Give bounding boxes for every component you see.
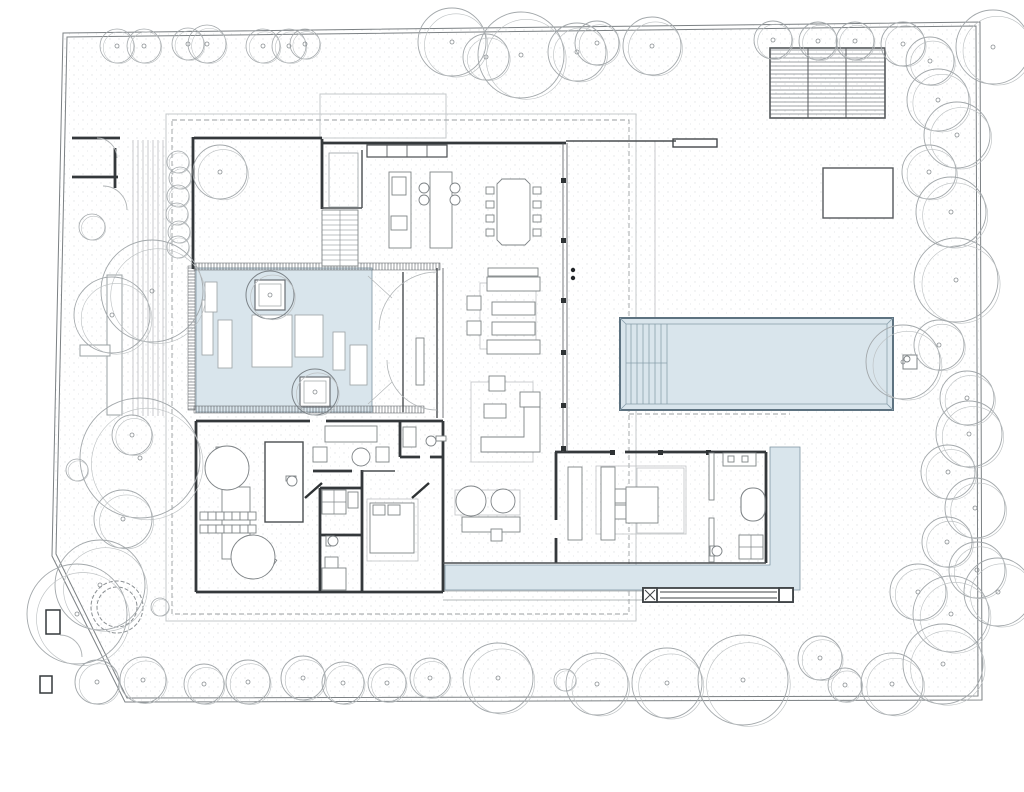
furniture-item bbox=[491, 529, 502, 541]
pergola-item bbox=[770, 48, 885, 118]
courtyard-pavers-item bbox=[333, 332, 345, 370]
furniture-item bbox=[489, 376, 505, 391]
furniture-item bbox=[486, 187, 494, 194]
deck-hatch-strips-item bbox=[194, 406, 424, 413]
furniture-item bbox=[568, 467, 582, 540]
furniture-item bbox=[436, 436, 446, 441]
courtyard-planters-item bbox=[300, 377, 330, 407]
glass-columns-item bbox=[610, 450, 615, 455]
furniture-item bbox=[240, 512, 248, 520]
furniture-item bbox=[200, 512, 208, 520]
furniture-item bbox=[601, 467, 615, 540]
garden-square bbox=[823, 168, 893, 218]
furniture-item bbox=[388, 505, 400, 515]
floor-plan-page bbox=[0, 0, 1024, 792]
chair-circles-item bbox=[426, 436, 436, 446]
furniture-item bbox=[248, 525, 256, 533]
furniture-item bbox=[430, 172, 452, 248]
gate-posts-item bbox=[40, 676, 52, 693]
garden-bench bbox=[673, 139, 717, 147]
furniture-item bbox=[373, 505, 385, 515]
garden-square-item bbox=[823, 168, 893, 218]
gate-posts-item bbox=[46, 610, 60, 634]
courtyard-pavers-item bbox=[350, 345, 367, 385]
furniture-item bbox=[533, 201, 541, 208]
furniture-item bbox=[742, 456, 748, 462]
furniture-item bbox=[232, 525, 240, 533]
furniture-item bbox=[484, 404, 506, 418]
column-dots-item bbox=[571, 268, 575, 272]
chair-circles-item bbox=[450, 183, 460, 193]
chair-circles-item bbox=[491, 489, 515, 513]
glass-columns-item bbox=[561, 446, 566, 451]
furniture-item bbox=[348, 492, 358, 508]
dining-table-item bbox=[497, 179, 530, 245]
chair-circles-item bbox=[328, 536, 338, 546]
chair-circles-item bbox=[205, 446, 249, 490]
glass-columns-item bbox=[561, 403, 566, 408]
furniture-item bbox=[486, 215, 494, 222]
furniture-item bbox=[709, 453, 714, 500]
furniture-item bbox=[487, 277, 540, 291]
chair-circles-item bbox=[231, 535, 275, 579]
column-dots-item bbox=[571, 276, 575, 280]
chair-circles-item bbox=[419, 183, 429, 193]
dining-table bbox=[497, 179, 530, 245]
courtyard-pavers-item bbox=[295, 315, 323, 357]
furniture-item bbox=[325, 426, 377, 442]
furniture-item bbox=[240, 525, 248, 533]
bathtub bbox=[741, 488, 765, 521]
furniture-item bbox=[216, 525, 224, 533]
site-plan-drawing bbox=[0, 0, 1024, 792]
furniture-item bbox=[467, 296, 481, 310]
courtyard-pavers-item bbox=[252, 315, 292, 367]
deck-hatch-vert bbox=[188, 266, 195, 410]
furniture-item bbox=[208, 512, 216, 520]
furniture-item bbox=[391, 216, 407, 230]
chair-circles-item bbox=[419, 195, 429, 205]
chair-circles-item bbox=[712, 546, 722, 556]
deck-hatch-vert-item bbox=[188, 266, 195, 410]
deck-hatch-strips-item bbox=[194, 263, 440, 270]
chair-circles-item bbox=[287, 476, 297, 486]
garden-bench-item bbox=[673, 139, 717, 147]
courtyard-pavers-item bbox=[218, 320, 232, 368]
furniture-item bbox=[200, 525, 208, 533]
courtyard-pavers-item bbox=[205, 282, 217, 312]
glass-columns-item bbox=[658, 450, 663, 455]
glass-columns-item bbox=[561, 350, 566, 355]
glass-columns-item bbox=[561, 298, 566, 303]
furniture-item bbox=[403, 427, 416, 447]
furniture-item bbox=[487, 340, 540, 354]
furniture-item bbox=[492, 302, 535, 315]
furniture-item bbox=[728, 456, 734, 462]
furniture-item bbox=[467, 321, 481, 335]
furniture-item bbox=[392, 177, 406, 195]
bathtub-item bbox=[741, 488, 765, 521]
furniture-item bbox=[232, 512, 240, 520]
furniture-item bbox=[533, 229, 541, 236]
furniture-item bbox=[533, 187, 541, 194]
furniture-item bbox=[216, 512, 224, 520]
furniture-item bbox=[416, 338, 424, 385]
furniture-item bbox=[486, 229, 494, 236]
site-trees-item bbox=[75, 660, 120, 705]
entry-door-arcs-item bbox=[60, 635, 82, 657]
furniture-item bbox=[486, 201, 494, 208]
furniture-item bbox=[376, 447, 389, 462]
chair-circles-item bbox=[450, 195, 460, 205]
furniture-item bbox=[313, 447, 327, 462]
walkway-bridge-item bbox=[643, 588, 793, 602]
furniture-item bbox=[533, 215, 541, 222]
walkway-bridge bbox=[643, 588, 793, 602]
furniture-item bbox=[492, 322, 535, 335]
furniture-item bbox=[224, 512, 232, 520]
walkway-bridge-item bbox=[779, 588, 793, 602]
courtyard-planters-item bbox=[255, 280, 285, 310]
pergola bbox=[770, 48, 885, 118]
furniture-item bbox=[322, 568, 346, 590]
glass-columns-item bbox=[561, 178, 566, 183]
furniture-item bbox=[520, 392, 540, 407]
furniture-item bbox=[224, 525, 232, 533]
furniture-item bbox=[626, 487, 658, 523]
chair-circles-item bbox=[352, 448, 370, 466]
furniture-item bbox=[248, 512, 256, 520]
glass-columns-item bbox=[561, 238, 566, 243]
furniture-item bbox=[208, 525, 216, 533]
furniture-item bbox=[488, 268, 538, 276]
chair-circles-item bbox=[456, 486, 486, 516]
